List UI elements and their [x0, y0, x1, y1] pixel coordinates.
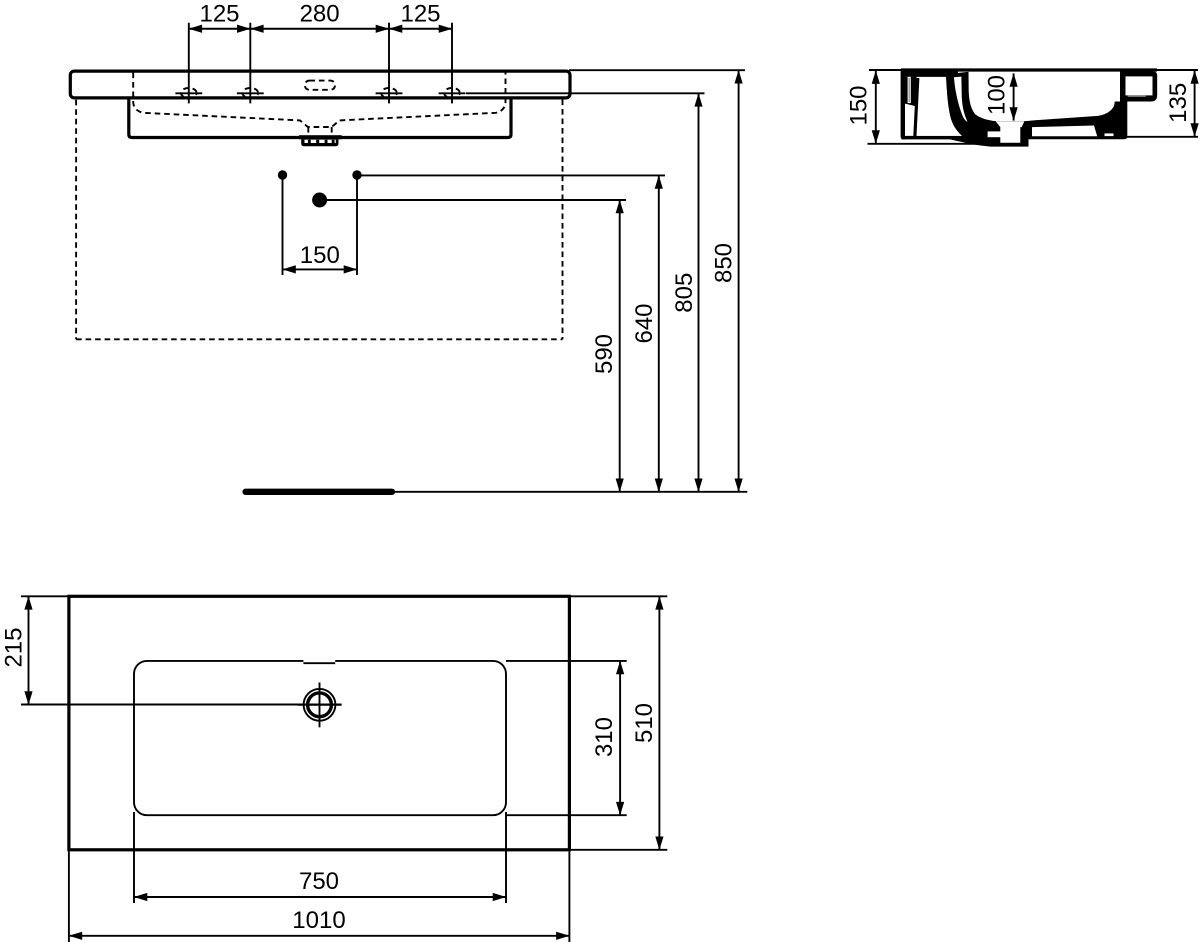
- svg-text:640: 640: [631, 303, 658, 343]
- svg-text:150: 150: [300, 242, 340, 269]
- svg-text:135: 135: [1165, 83, 1192, 123]
- svg-text:100: 100: [984, 75, 1011, 115]
- svg-text:1010: 1010: [292, 907, 345, 934]
- svg-text:750: 750: [299, 868, 339, 895]
- svg-text:215: 215: [1, 627, 28, 667]
- svg-text:310: 310: [591, 717, 618, 757]
- svg-text:805: 805: [671, 273, 698, 313]
- svg-text:590: 590: [591, 334, 618, 374]
- svg-text:280: 280: [300, 0, 340, 27]
- svg-text:125: 125: [400, 0, 440, 27]
- svg-text:150: 150: [846, 85, 873, 125]
- svg-text:850: 850: [710, 243, 737, 283]
- svg-text:125: 125: [199, 0, 239, 27]
- svg-text:510: 510: [631, 703, 658, 743]
